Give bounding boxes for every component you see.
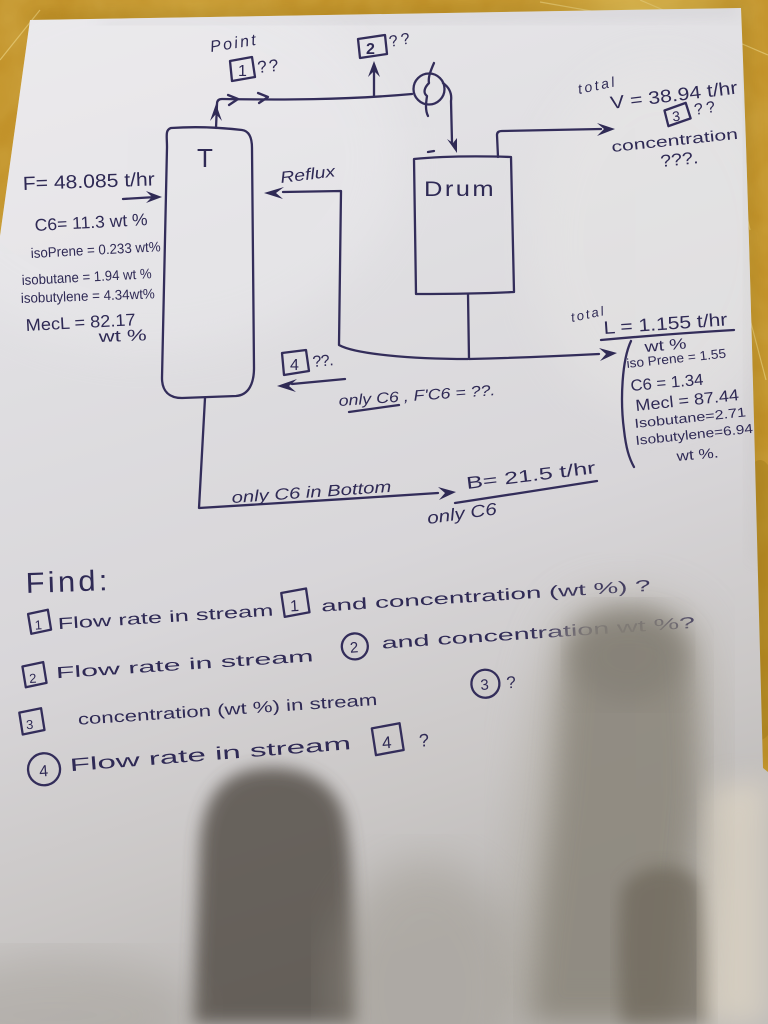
svg-text:4: 4 xyxy=(381,733,392,753)
svg-text:2: 2 xyxy=(349,639,358,657)
svg-text:4: 4 xyxy=(290,357,299,374)
svg-text:1: 1 xyxy=(34,617,42,632)
svg-text:Drum: Drum xyxy=(424,178,496,201)
svg-text:wt %: wt % xyxy=(97,327,147,346)
svg-text:T: T xyxy=(197,143,213,173)
svg-text:2: 2 xyxy=(29,671,37,686)
svg-text:3: 3 xyxy=(480,677,489,695)
svg-text:4: 4 xyxy=(39,763,49,781)
svg-text:2: 2 xyxy=(366,41,375,58)
svg-text:Find:: Find: xyxy=(25,565,111,600)
svg-text:?: ? xyxy=(418,730,430,751)
svg-text:1: 1 xyxy=(290,598,300,616)
svg-text:3: 3 xyxy=(26,717,34,732)
svg-text:??.: ??. xyxy=(312,352,334,371)
svg-text:???.: ???. xyxy=(659,148,699,171)
svg-text:?: ? xyxy=(506,673,517,693)
svg-text:1: 1 xyxy=(238,63,247,80)
